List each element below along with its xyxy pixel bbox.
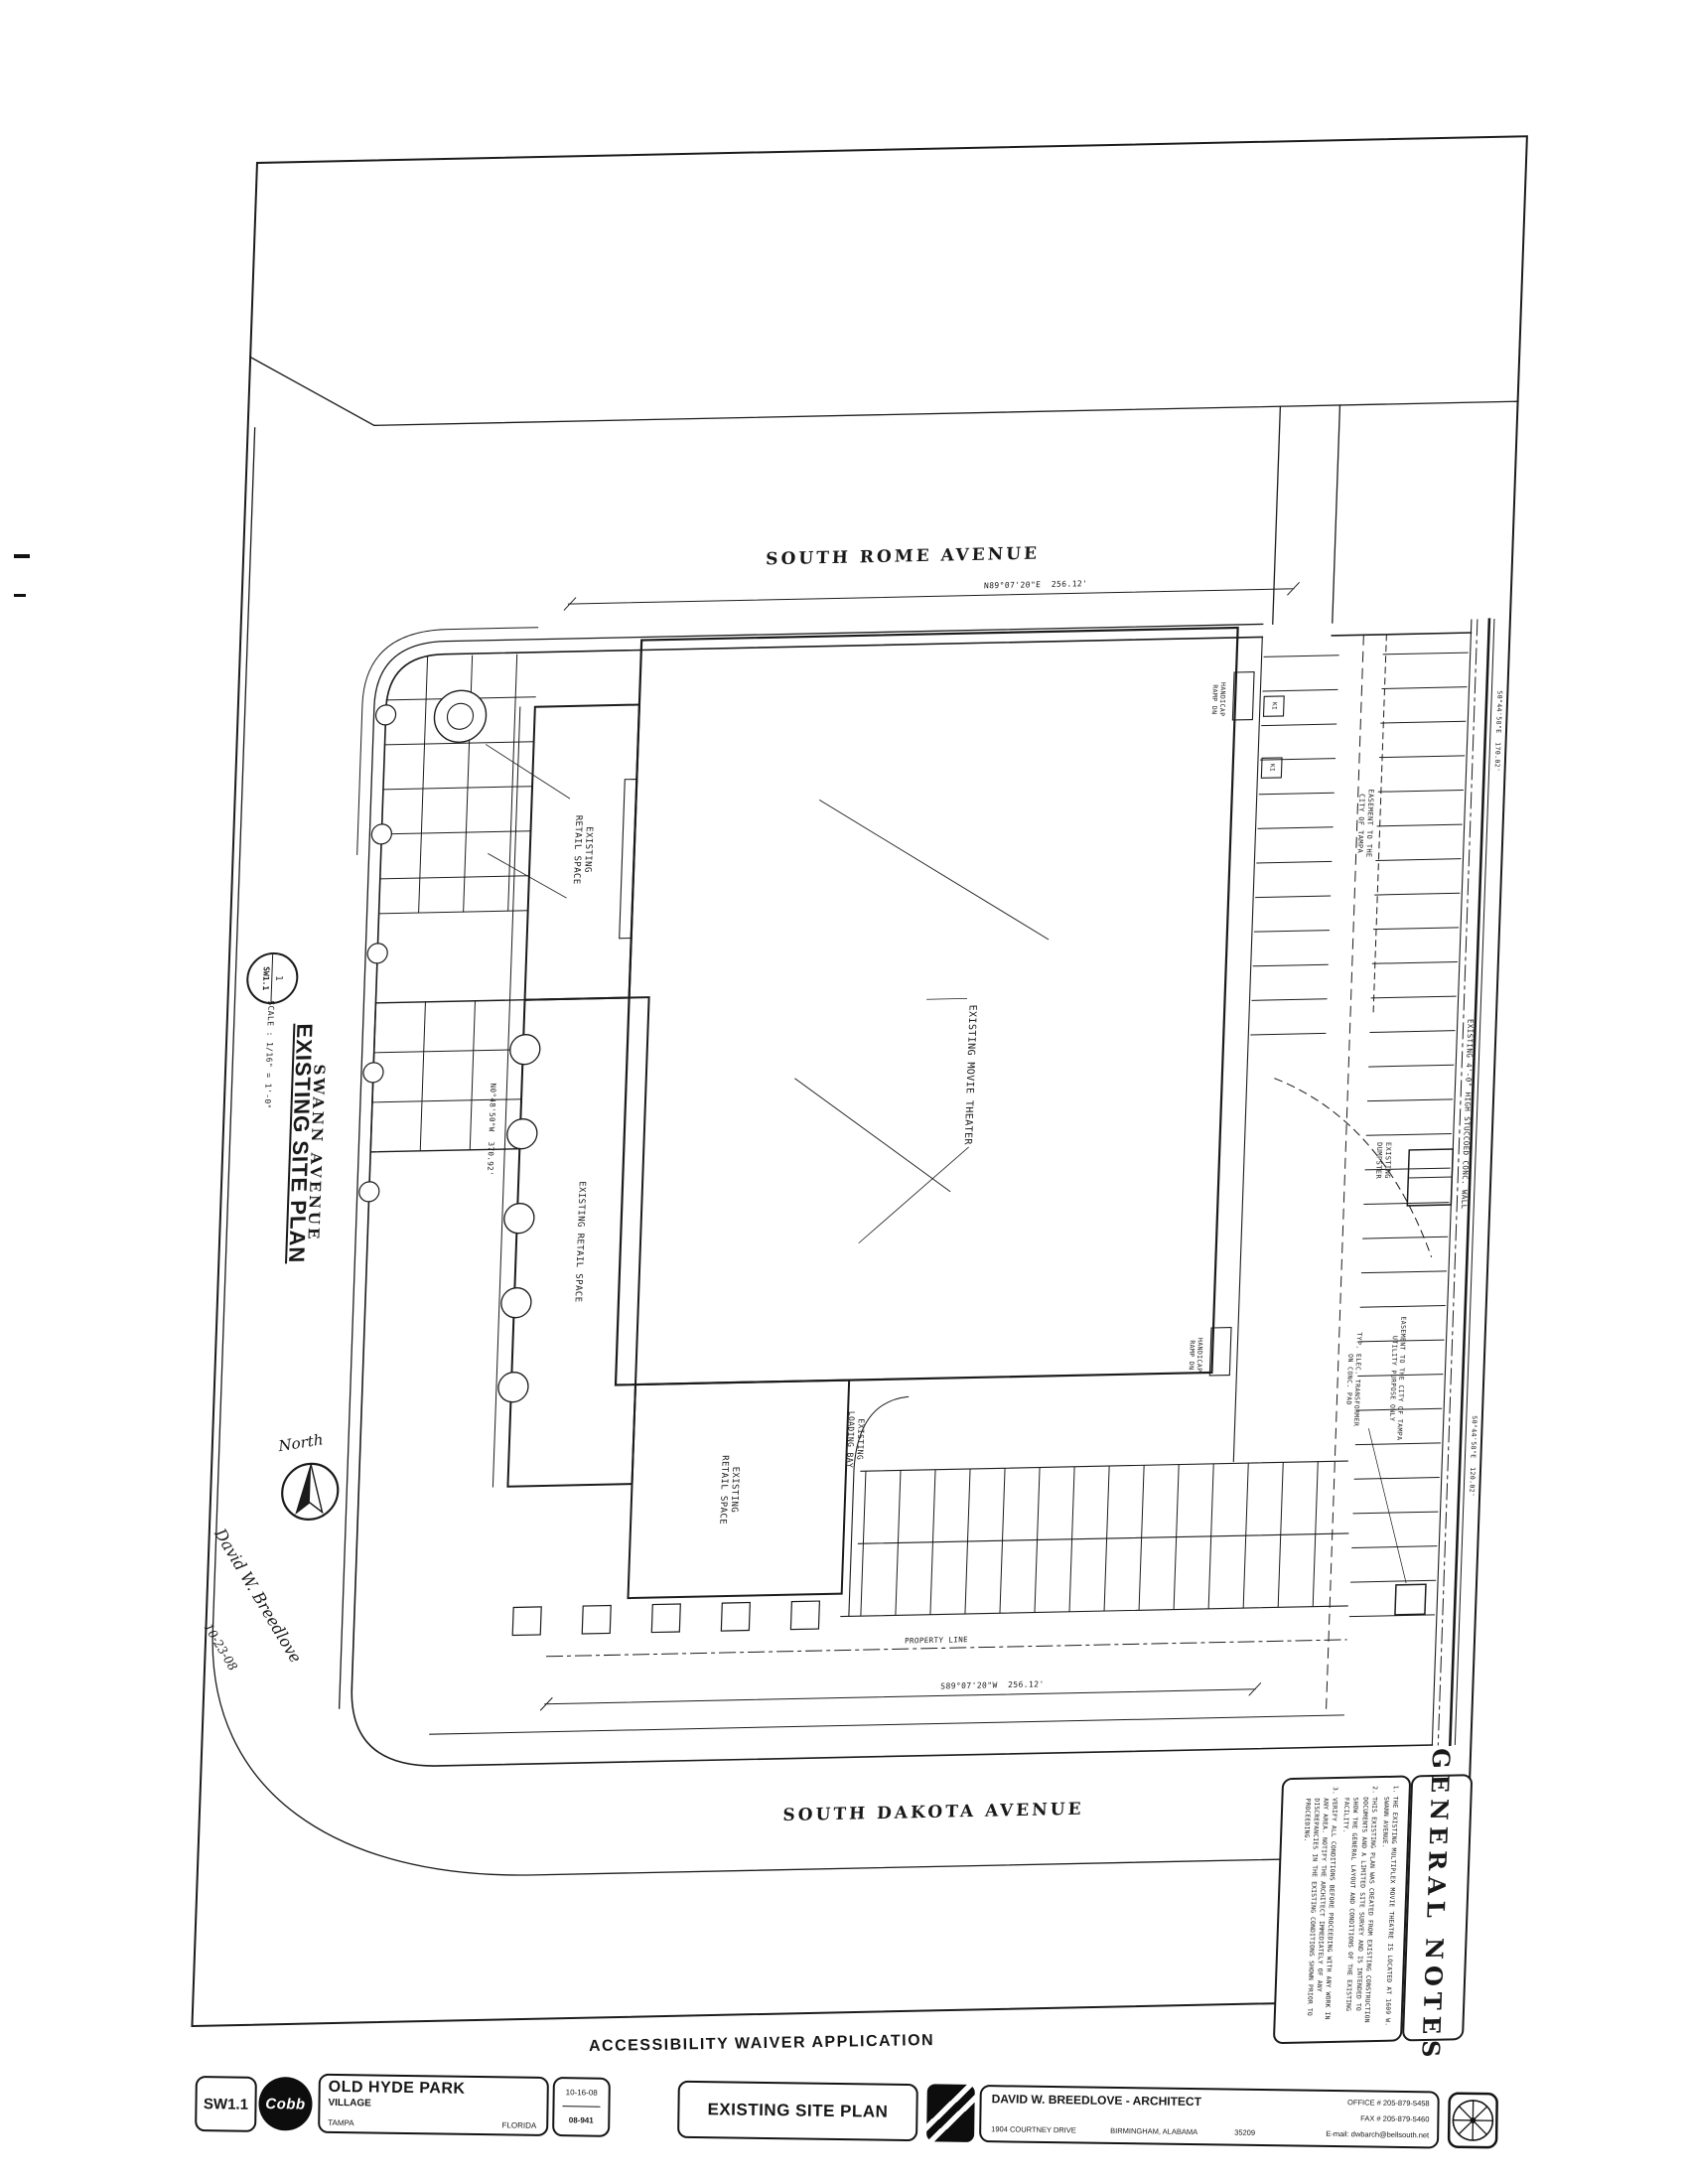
kiosk-1-label: KI [1270,702,1278,710]
scan-artifact [14,594,26,597]
easement-top-label: EASEMENT TO THE CITY OF TAMPA [1355,789,1375,858]
note-2: 2. THIS EXISTING PLAN WAS CREATED FROM E… [1335,1786,1379,2029]
architect-zip: 35209 [1234,2128,1255,2137]
property-line-label: PROPERTY LINE [905,1635,968,1646]
dimension-bottom [541,1683,1261,1710]
architect-fax: FAX # 205-879-5460 [1360,2113,1429,2123]
architect-name: DAVID W. BREEDLOVE - ARCHITECT [992,2092,1202,2109]
sheet-subtitle: ACCESSIBILITY WAIVER APPLICATION [589,2032,934,2056]
handicap-ramp-bottom-label: HANDICAP RAMP DN [1187,1338,1203,1373]
site-outer-sidewalk [340,624,1263,1708]
project-name: OLD HYDE PARK [329,2079,466,2099]
site-plan-linework [191,135,1528,2027]
transformer-label: TYP. ELEC. TRANSFORMER ON CONC. PAD [1343,1332,1363,1426]
retail-south-label: EXISTING RETAIL SPACE [716,1455,741,1525]
sheet-number: SW1.1 [204,2096,248,2113]
conc-wall-line [1450,620,1489,1745]
project-name-2: VILLAGE [328,2098,370,2110]
north-arrow [281,1463,339,1520]
drawing-sheet: SOUTH ROME AVENUE SOUTH DAKOTA AVENUE SW… [191,135,1528,2027]
sheet-title-box: EXISTING SITE PLAN [677,2081,918,2141]
title-block: SW1.1 Cobb OLD HYDE PARK VILLAGE TAMPA F… [195,2068,1506,2165]
project-city: TAMPA [328,2118,353,2127]
compass-logo [1447,2092,1499,2150]
date-job-box: 10-16-08 08-941 [552,2077,611,2137]
loading-bay-label: EXISTING LOADING BAY [844,1411,866,1469]
theater-outline [616,628,1238,1385]
dimension-top [564,583,1299,610]
cobb-logo: Cobb [258,2077,313,2131]
architect-office-phone: OFFICE # 205-879-5458 [1347,2098,1430,2108]
dumpster-label: EXISTING DUMPSTER [1373,1142,1392,1179]
property-line-east [1438,620,1477,1745]
architect-box: DAVID W. BREEDLOVE - ARCHITECT 1904 COUR… [979,2085,1440,2148]
rome-north-curb [247,330,1521,428]
planters [512,1601,819,1635]
kiosk-2-label: KI [1268,764,1276,772]
job-number: 08-941 [554,2115,608,2125]
architect-logo [926,2084,975,2142]
sheet-number-box: SW1.1 [195,2076,257,2132]
arcade-columns [497,1034,540,1402]
transformer-pad [1395,1584,1426,1615]
issue-date: 10-16-08 [555,2088,609,2098]
architect-city: BIRMINGHAM, ALABAMA [1110,2126,1197,2136]
detail-sheet-ref: SW1.1 [261,966,271,990]
architect-address: 1904 COURTNEY DRIVE [991,2124,1076,2134]
architect-email: E-mail: dwbarch@bellsouth.net [1326,2129,1429,2139]
scan-artifact [14,554,30,558]
note-3: 3. VERIFY ALL CONDITIONS BEFORE PROCEEDI… [1295,1787,1339,2030]
project-state: FLORIDA [501,2120,536,2129]
street-trees [358,705,395,1202]
handicap-ramp-top-label: HANDICAP RAMP DN [1209,682,1226,717]
project-box: OLD HYDE PARK VILLAGE TAMPA FLORIDA [318,2074,549,2136]
detail-number: 1 [273,975,283,981]
cobb-logo-text: Cobb [265,2095,306,2112]
swann-west-curb-dakota-south-curb [205,401,1519,1882]
south-parking-rows [841,1461,1352,1617]
sheet-title: EXISTING SITE PLAN [707,2100,888,2122]
retail-upper-label: EXISTING RETAIL SPACE [569,814,594,884]
general-notes-list: 1. THE EXISTING MULTIPLEX MOVIE THEATRE … [1280,1786,1400,2030]
easement-arc [1268,1075,1438,1259]
